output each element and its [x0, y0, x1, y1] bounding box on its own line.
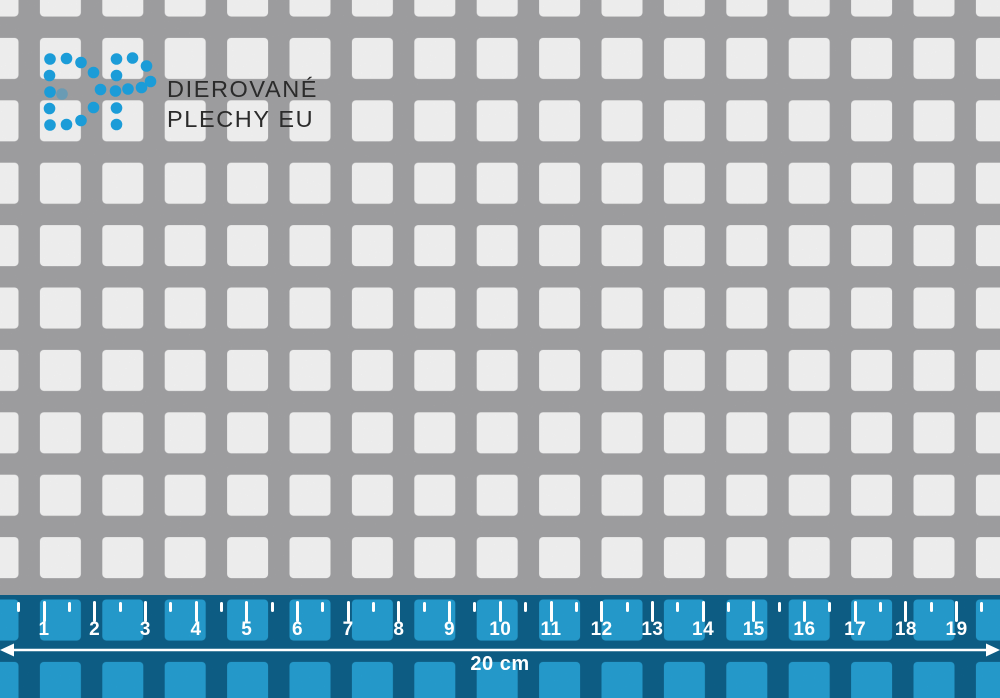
ruler-total-label: 20 cm [470, 653, 529, 676]
ruler-number: 2 [89, 620, 100, 640]
ruler-tick-minor [271, 602, 274, 612]
ruler-number: 3 [140, 620, 151, 640]
ruler-tick-minor [68, 602, 71, 612]
ruler-number: 4 [191, 620, 202, 640]
brand-name-line1: DIEROVANÉ [167, 74, 318, 104]
ruler-number: 12 [591, 620, 613, 640]
ruler-number: 18 [895, 620, 917, 640]
ruler-tick-minor [575, 602, 578, 612]
ruler-tick-minor [727, 602, 730, 612]
dp-logo-icon [0, 0, 170, 145]
brand-logo: DIEROVANÉ PLECHY EU [0, 0, 340, 150]
ruler-tick-minor [220, 602, 223, 612]
ruler-number: 10 [489, 620, 511, 640]
ruler-number: 6 [292, 620, 303, 640]
ruler-tick-minor [980, 602, 983, 612]
ruler-number: 15 [743, 620, 765, 640]
ruler-number: 7 [343, 620, 354, 640]
ruler-number: 9 [444, 620, 455, 640]
brand-name: DIEROVANÉ PLECHY EU [167, 74, 318, 134]
ruler-tick-minor [17, 602, 20, 612]
ruler-number: 11 [540, 620, 561, 640]
ruler-tick-minor [524, 602, 527, 612]
brand-name-line2: PLECHY EU [167, 104, 318, 134]
ruler-tick-minor [879, 602, 882, 612]
ruler-number: 17 [844, 620, 866, 640]
ruler-tick-minor [676, 602, 679, 612]
ruler-tick-minor [930, 602, 933, 612]
ruler-number: 16 [793, 620, 815, 640]
ruler-tick-minor [626, 602, 629, 612]
ruler-tick-minor [119, 602, 122, 612]
ruler-tick-minor [169, 602, 172, 612]
ruler-tick-minor [372, 602, 375, 612]
perforated-sheet-photo: DIEROVANÉ PLECHY EU 20 cm 12345678910111… [0, 0, 1000, 698]
ruler-number: 19 [946, 620, 968, 640]
ruler-tick-minor [778, 602, 781, 612]
ruler: 20 cm 12345678910111213141516171819 [0, 595, 1000, 698]
ruler-number: 13 [641, 620, 663, 640]
ruler-number: 8 [393, 620, 404, 640]
ruler-number: 1 [38, 620, 49, 640]
ruler-tick-minor [473, 602, 476, 612]
ruler-tick-minor [423, 602, 426, 612]
ruler-number: 5 [241, 620, 252, 640]
ruler-tick-minor [828, 602, 831, 612]
ruler-tick-minor [321, 602, 324, 612]
ruler-number: 14 [692, 620, 714, 640]
